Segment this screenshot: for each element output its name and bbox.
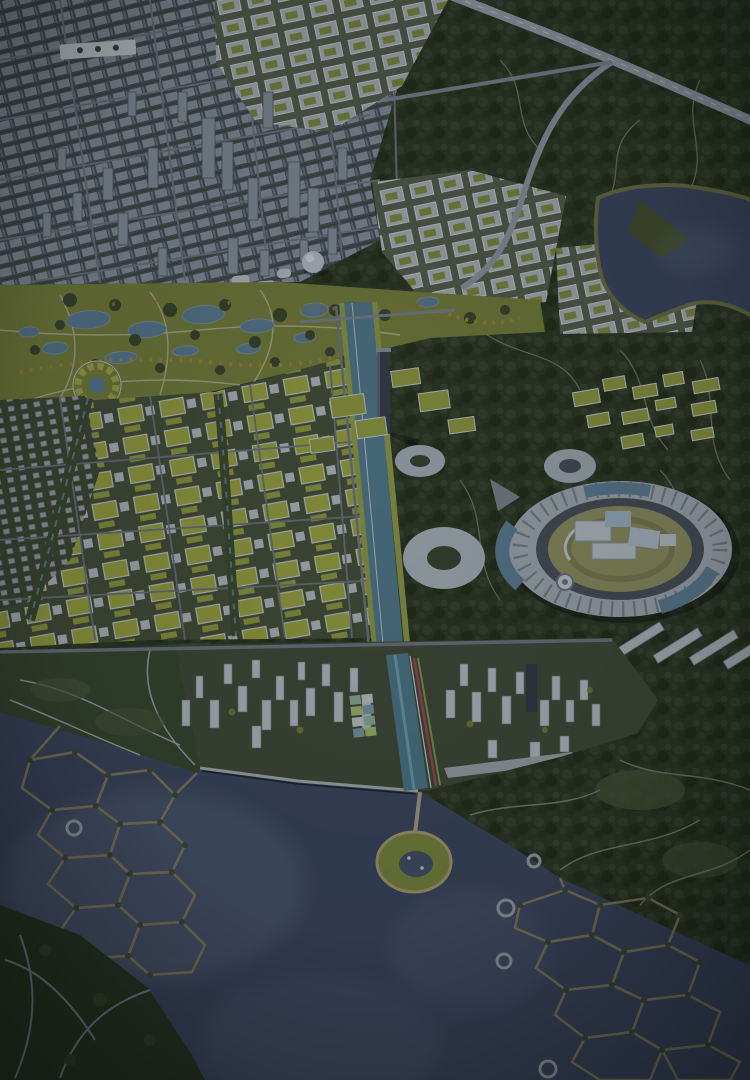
masterplan-scene: [0, 0, 750, 1080]
aerial-city-rendering: [0, 0, 750, 1080]
vignette-overlay: [0, 0, 750, 1080]
